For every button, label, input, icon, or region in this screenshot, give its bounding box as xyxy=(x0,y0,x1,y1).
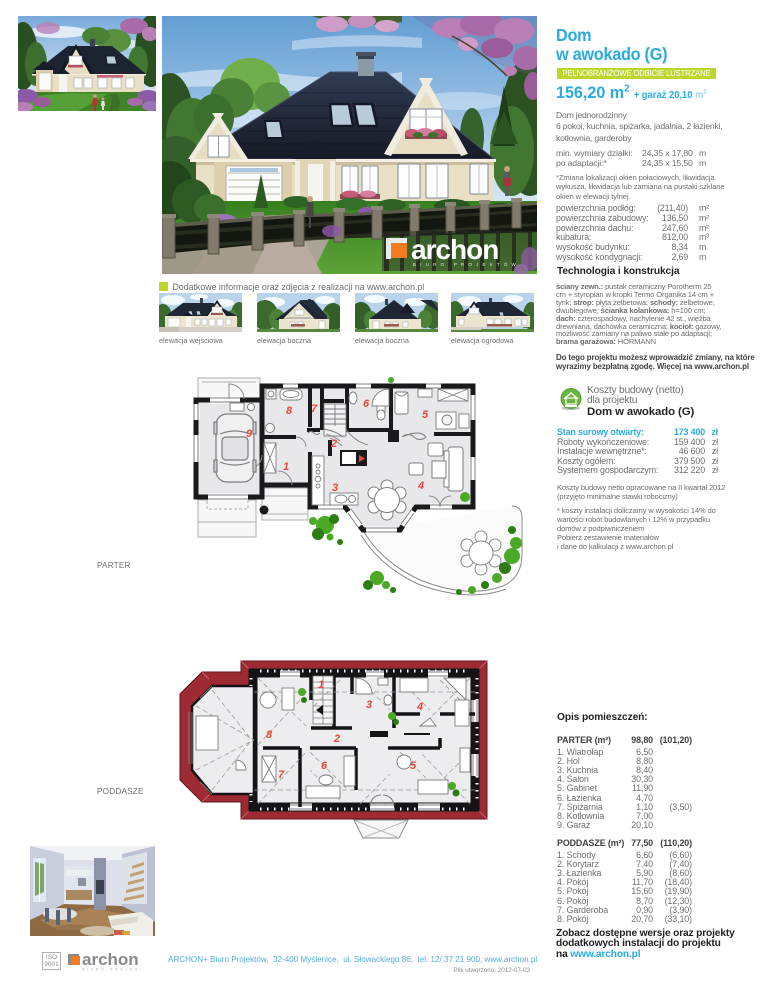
svg-text:6: 6 xyxy=(363,398,370,410)
svg-text:4: 4 xyxy=(416,701,423,713)
svg-text:9: 9 xyxy=(246,428,253,440)
svg-text:8: 8 xyxy=(266,729,273,741)
svg-text:4: 4 xyxy=(417,480,424,492)
svg-text:1: 1 xyxy=(283,461,289,473)
svg-text:5: 5 xyxy=(410,760,417,772)
svg-text:3: 3 xyxy=(366,699,372,711)
svg-text:BIURO PROJEKTÓW: BIURO PROJEKTÓW xyxy=(82,967,141,972)
svg-text:3: 3 xyxy=(332,482,338,494)
svg-text:1: 1 xyxy=(318,679,324,691)
svg-text:5: 5 xyxy=(422,409,429,421)
svg-text:BIURO PROJEKTÓW: BIURO PROJEKTÓW xyxy=(413,261,520,267)
svg-text:8: 8 xyxy=(286,405,293,417)
svg-text:7: 7 xyxy=(278,769,285,781)
svg-text:2: 2 xyxy=(333,733,340,745)
svg-text:archon: archon xyxy=(411,234,498,265)
svg-text:7: 7 xyxy=(311,403,318,415)
svg-text:6: 6 xyxy=(321,760,328,772)
svg-text:archon: archon xyxy=(82,950,139,969)
svg-text:2: 2 xyxy=(330,438,337,450)
